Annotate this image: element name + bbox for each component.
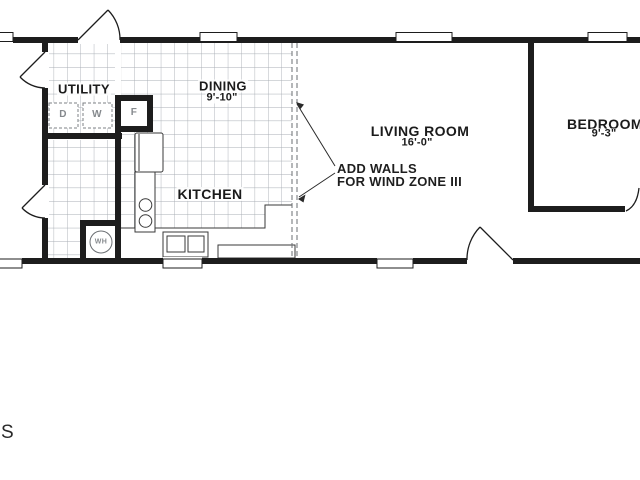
- door-utility-rear: [78, 10, 120, 40]
- stove-burner: [139, 215, 152, 228]
- washer-label: W: [91, 110, 103, 120]
- exterior-wall-bottom: [0, 258, 640, 264]
- bedroom-wall-vertical: [528, 37, 534, 212]
- furnace-label: F: [130, 108, 139, 118]
- wind-zone-dashed-walls: [292, 43, 297, 258]
- corner-cutoff-text: S: [1, 422, 14, 444]
- window-bottom-left-cut: [0, 259, 22, 268]
- window-living: [396, 33, 452, 42]
- window-dining: [200, 33, 237, 42]
- window-top-left-cut: [0, 33, 13, 42]
- room-dim-dining: 9'-10": [205, 93, 238, 104]
- room-label-kitchen: KITCHEN: [176, 187, 243, 201]
- door-front-entry: [467, 227, 513, 260]
- door-bedroom: [626, 188, 639, 211]
- dryer-label: D: [58, 110, 68, 120]
- window-kitchen: [163, 259, 202, 268]
- window-living-front: [377, 259, 413, 268]
- snack-bar: [218, 245, 295, 258]
- kitchen-bath-wall: [115, 132, 121, 264]
- stove-burner: [139, 199, 152, 212]
- room-label-utility: UTILITY: [57, 83, 111, 96]
- wind-zone-note-line2: FOR WIND ZONE III: [337, 176, 462, 188]
- annotation-leader: [296, 102, 335, 203]
- wh-closet-wall-top: [80, 220, 121, 226]
- water-heater-label: WH: [94, 239, 108, 246]
- wh-closet-wall-left: [80, 220, 86, 264]
- room-dim-bedroom: 9'-3": [591, 129, 618, 140]
- window-bedroom: [588, 33, 627, 42]
- utility-bath-wall: [42, 133, 122, 139]
- floor-plan-page: UTILITY DINING 9'-10" KITCHEN LIVING ROO…: [0, 0, 640, 480]
- bedroom-wall-bottom: [528, 206, 625, 212]
- room-dim-living-room: 16'-0": [400, 138, 433, 149]
